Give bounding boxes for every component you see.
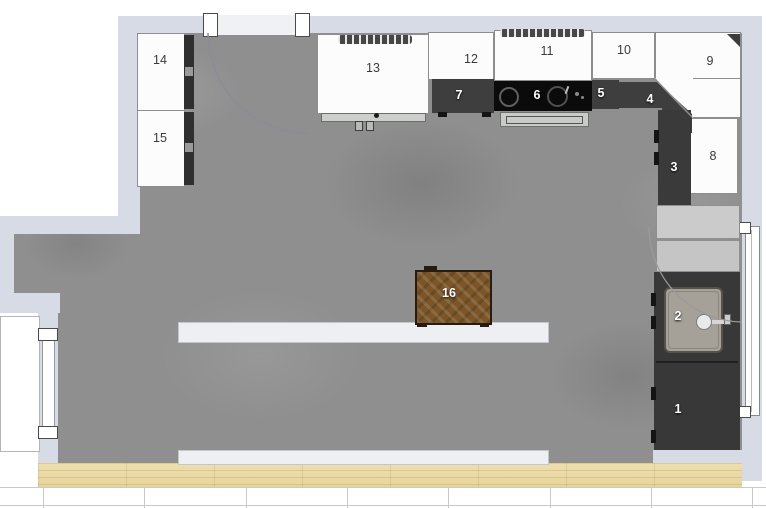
counter-handle bbox=[438, 112, 447, 117]
island-tab bbox=[480, 323, 489, 327]
low-wall-bar-middle[interactable] bbox=[178, 322, 549, 343]
window-left-jamb-bottom bbox=[38, 426, 58, 439]
cabinet-14-handle bbox=[185, 67, 193, 76]
faucet-icon bbox=[696, 314, 712, 330]
label-item-3: 3 bbox=[671, 161, 678, 174]
fridge-top[interactable] bbox=[656, 205, 740, 239]
grid-line-vertical bbox=[347, 487, 348, 508]
label-item-7: 7 bbox=[456, 89, 463, 102]
label-item-8: 8 bbox=[710, 150, 717, 163]
label-item-6: 6 bbox=[534, 89, 541, 102]
label-item-12: 12 bbox=[464, 53, 478, 66]
burner-icon bbox=[499, 87, 519, 107]
window-right-sash[interactable] bbox=[745, 226, 760, 416]
wall-step bbox=[12, 293, 60, 313]
counter-handle bbox=[651, 430, 656, 443]
counter-handle bbox=[651, 387, 656, 400]
wall-mid-horizontal bbox=[12, 216, 140, 234]
fridge-bottom[interactable] bbox=[656, 240, 740, 272]
label-item-1: 1 bbox=[675, 403, 682, 416]
cooktop-dot-icon bbox=[581, 96, 584, 99]
corner-cabinet-9-lower[interactable] bbox=[692, 78, 741, 118]
window-left-jamb-top bbox=[38, 328, 58, 341]
label-item-14: 14 bbox=[153, 54, 167, 67]
grid-line-vertical bbox=[752, 487, 753, 508]
island-tab bbox=[417, 323, 427, 327]
grid-line-vertical bbox=[246, 487, 247, 508]
label-item-9: 9 bbox=[707, 55, 714, 68]
hood-grille-icon bbox=[500, 29, 585, 37]
floor-plan-canvas: 1 2 3 4 5 6 7 8 9 10 11 12 13 14 15 16 bbox=[0, 0, 766, 508]
cooktop-dot-icon bbox=[575, 92, 579, 96]
door-jamb-left bbox=[203, 13, 218, 37]
grid-line-vertical bbox=[43, 487, 44, 508]
door-jamb-right bbox=[295, 13, 310, 37]
label-item-16: 16 bbox=[442, 287, 456, 300]
cabinet-15[interactable] bbox=[137, 110, 185, 187]
label-item-13: 13 bbox=[366, 62, 380, 75]
faucet-knob-icon bbox=[724, 314, 731, 325]
grid-line-vertical bbox=[448, 487, 449, 508]
label-item-15: 15 bbox=[153, 132, 167, 145]
drainer-grille-icon bbox=[338, 35, 412, 44]
low-wall-bar-bottom[interactable] bbox=[178, 450, 549, 465]
faucet-dot-icon bbox=[374, 113, 379, 118]
faucet-handle-icon bbox=[366, 121, 374, 131]
label-item-5: 5 bbox=[598, 87, 605, 100]
counter-handle bbox=[654, 130, 659, 143]
counter-handle bbox=[651, 293, 656, 306]
label-item-10: 10 bbox=[617, 44, 631, 57]
faucet-handle-icon bbox=[355, 121, 363, 131]
window-left-sash[interactable] bbox=[42, 339, 55, 428]
grid-line-vertical bbox=[651, 487, 652, 508]
counter-seam bbox=[656, 361, 738, 363]
door-opening[interactable] bbox=[217, 15, 296, 35]
counter-handle bbox=[654, 152, 659, 165]
counter-handle bbox=[482, 112, 491, 117]
label-item-2: 2 bbox=[675, 310, 682, 323]
cabinet-15-handle bbox=[185, 143, 193, 152]
label-item-11: 11 bbox=[541, 45, 554, 58]
window-right-mullion bbox=[751, 230, 752, 412]
counter-handle bbox=[651, 316, 656, 329]
counter-7[interactable] bbox=[432, 79, 494, 113]
grid-line-vertical bbox=[144, 487, 145, 508]
cabinet-14[interactable] bbox=[137, 33, 185, 111]
oven-front-inner bbox=[506, 116, 583, 124]
burner-icon bbox=[547, 86, 568, 107]
corner-cabinet-9[interactable] bbox=[655, 32, 741, 79]
adjacent-room bbox=[0, 316, 40, 452]
counter-3[interactable] bbox=[658, 110, 691, 206]
wall-cabinet-12[interactable] bbox=[428, 32, 494, 80]
label-item-4: 4 bbox=[647, 93, 654, 106]
wood-floor bbox=[38, 463, 742, 488]
grid-line-vertical bbox=[550, 487, 551, 508]
